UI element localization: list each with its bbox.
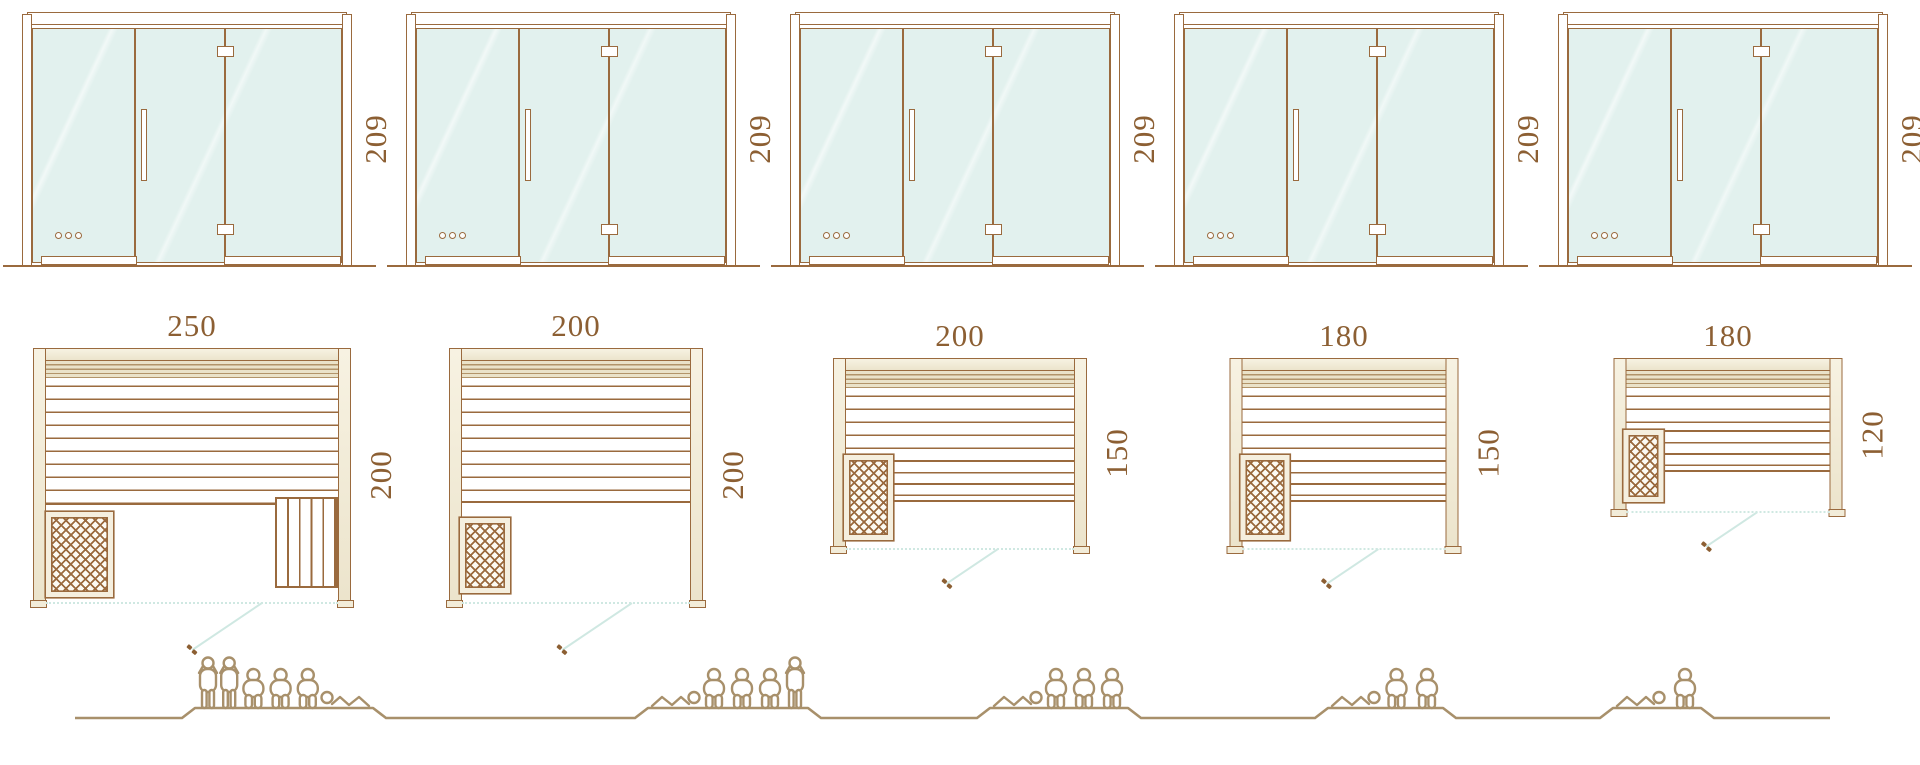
capacity-figures-svg — [0, 645, 1920, 765]
top-frame-beam — [1563, 12, 1883, 25]
plan-depth-dimension: 120 — [1857, 410, 1888, 460]
left-side-post — [790, 14, 800, 266]
main-bench-slats — [462, 361, 690, 503]
person-sitting-figure — [271, 669, 291, 708]
vent-holes-icon — [823, 232, 850, 239]
vent-holes-icon — [1591, 232, 1618, 239]
left-wall — [33, 348, 46, 602]
door-front-elevation: 209 — [1174, 12, 1504, 266]
backrest-edge — [1243, 371, 1446, 388]
glass-front-panel — [1568, 28, 1878, 263]
back-wall — [1230, 358, 1459, 371]
left-side-post — [1174, 14, 1184, 266]
person-sitting-figure — [732, 669, 752, 708]
glass-front-panel — [416, 28, 726, 263]
hinge-icon — [601, 224, 618, 235]
top-frame-beam — [27, 12, 347, 25]
top-frame-beam — [411, 12, 731, 25]
heater-icon — [460, 518, 510, 593]
backrest-edge — [462, 361, 690, 378]
door-handle-dots-icon — [1322, 579, 1334, 591]
door-height-dimension: 209 — [1896, 114, 1920, 164]
person-sitting-figure — [704, 669, 724, 708]
top-frame-beam — [1179, 12, 1499, 25]
bottom-rail — [608, 256, 725, 265]
door-front-elevation: 209 — [406, 12, 736, 266]
person-reclining-figure — [652, 692, 700, 706]
person-sitting-figure — [1102, 669, 1122, 708]
plan-width-dimension: 250 — [33, 310, 351, 341]
hinge-icon — [217, 224, 234, 235]
bottom-rail — [224, 256, 341, 265]
person-standing-figure — [786, 658, 804, 709]
hinge-icon — [985, 224, 1002, 235]
plan-depth-dimension: 150 — [1473, 428, 1504, 478]
bottom-rail — [41, 256, 137, 265]
door-handle-icon — [525, 109, 531, 181]
capacity-group — [1617, 669, 1695, 708]
glass-divider — [518, 28, 520, 263]
back-wall — [833, 358, 1087, 371]
glass-divider — [1286, 28, 1288, 263]
bottom-rail — [992, 256, 1109, 265]
person-sitting-figure — [1046, 669, 1066, 708]
person-sitting-figure — [1417, 669, 1437, 708]
back-wall — [449, 348, 703, 361]
ground-line — [1539, 265, 1912, 267]
person-reclining-figure — [1332, 692, 1380, 706]
capacity-group — [199, 658, 369, 709]
ground-line — [771, 265, 1144, 267]
door-handle-icon — [1293, 109, 1299, 181]
right-wall — [338, 348, 351, 602]
right-side-post — [342, 14, 352, 266]
glass-front-panel — [32, 28, 342, 263]
plan-depth-dimension: 200 — [717, 450, 748, 500]
person-reclining-figure — [994, 692, 1042, 706]
open-door-swing-line — [192, 602, 263, 651]
glass-divider — [902, 28, 904, 263]
plan-view-drawing: 200 200 — [449, 348, 703, 602]
capacity-group — [1332, 669, 1437, 708]
heater-icon — [844, 455, 893, 540]
plan-view-drawing: 180 150 — [1230, 358, 1459, 548]
right-wall — [1074, 358, 1087, 548]
hinge-icon — [1369, 46, 1386, 57]
bottom-rail — [1760, 256, 1877, 265]
left-side-post — [22, 14, 32, 266]
vent-holes-icon — [1207, 232, 1234, 239]
hinge-icon — [985, 46, 1002, 57]
right-side-post — [726, 14, 736, 266]
vent-holes-icon — [55, 232, 82, 239]
backrest-edge — [46, 361, 338, 378]
person-sitting-figure — [1387, 669, 1407, 708]
glass-front-dotted-line — [1627, 511, 1830, 513]
top-frame-beam — [795, 12, 1115, 25]
right-side-post — [1110, 14, 1120, 266]
bottom-rail — [809, 256, 905, 265]
door-handle-icon — [141, 109, 147, 181]
plan-view-drawing: 250 200 — [33, 348, 351, 602]
back-wall — [1614, 358, 1843, 371]
open-door-swing-line — [562, 602, 633, 651]
door-front-elevation: 209 — [22, 12, 352, 266]
bottom-rail — [1193, 256, 1289, 265]
lower-bench-slats — [1290, 462, 1446, 502]
hinge-icon — [1753, 224, 1770, 235]
backrest-edge — [1627, 371, 1830, 388]
plan-depth-dimension: 150 — [1101, 428, 1132, 478]
left-side-post — [406, 14, 416, 266]
door-handle-dots-icon — [1701, 542, 1713, 554]
person-sitting-figure — [1074, 669, 1094, 708]
bottom-rail — [1376, 256, 1493, 265]
plan-width-dimension: 180 — [1614, 320, 1843, 351]
glass-front-dotted-line — [46, 602, 338, 604]
hinge-icon — [601, 46, 618, 57]
heater-icon — [1241, 455, 1290, 540]
person-sitting-figure — [243, 669, 263, 708]
lower-bench-slats — [893, 462, 1074, 502]
right-side-post — [1494, 14, 1504, 266]
glass-front-panel — [1184, 28, 1494, 263]
glass-front-dotted-line — [1243, 548, 1446, 550]
right-wall — [690, 348, 703, 602]
glass-front-dotted-line — [462, 602, 690, 604]
door-handle-icon — [909, 109, 915, 181]
bottom-rail — [425, 256, 521, 265]
ground-line — [1155, 265, 1528, 267]
ground-line — [387, 265, 760, 267]
plan-view-drawing: 200 150 — [833, 358, 1087, 548]
back-wall — [33, 348, 351, 361]
door-handle-dots-icon — [942, 579, 954, 591]
vent-holes-icon — [439, 232, 466, 239]
heater-icon — [46, 512, 113, 597]
glass-front-dotted-line — [846, 548, 1074, 550]
backrest-edge — [846, 371, 1074, 388]
person-standing-figure — [220, 658, 238, 709]
hinge-icon — [1369, 224, 1386, 235]
glass-divider — [134, 28, 136, 263]
open-door-swing-line — [1326, 548, 1379, 585]
open-door-swing-line — [1706, 511, 1759, 548]
person-sitting-figure — [1675, 669, 1695, 708]
plan-view-drawing: 180 120 — [1614, 358, 1843, 511]
person-standing-figure — [199, 658, 217, 709]
left-side-post — [1558, 14, 1568, 266]
main-bench-slats — [46, 361, 338, 505]
plan-width-dimension: 180 — [1230, 320, 1459, 351]
hinge-icon — [1753, 46, 1770, 57]
ground-line — [3, 265, 376, 267]
open-door-swing-line — [946, 548, 999, 585]
step-bench — [275, 497, 338, 588]
lower-bench-slats — [1664, 432, 1830, 472]
bottom-rail — [1577, 256, 1673, 265]
person-reclining-figure — [1617, 692, 1665, 706]
capacity-group — [652, 658, 804, 709]
person-sitting-figure — [298, 669, 318, 708]
bench-profile-line — [75, 708, 1830, 718]
capacity-group — [994, 669, 1122, 708]
door-front-elevation: 209 — [1558, 12, 1888, 266]
right-wall — [1830, 358, 1843, 511]
hinge-icon — [217, 46, 234, 57]
heater-icon — [1624, 430, 1664, 502]
door-handle-icon — [1677, 109, 1683, 181]
glass-divider — [1670, 28, 1672, 263]
plan-width-dimension: 200 — [833, 320, 1087, 351]
right-side-post — [1878, 14, 1888, 266]
person-sitting-figure — [760, 669, 780, 708]
right-wall — [1446, 358, 1459, 548]
glass-front-panel — [800, 28, 1110, 263]
plan-width-dimension: 200 — [449, 310, 703, 341]
person-reclining-figure — [322, 692, 370, 706]
door-front-elevation: 209 — [790, 12, 1120, 266]
